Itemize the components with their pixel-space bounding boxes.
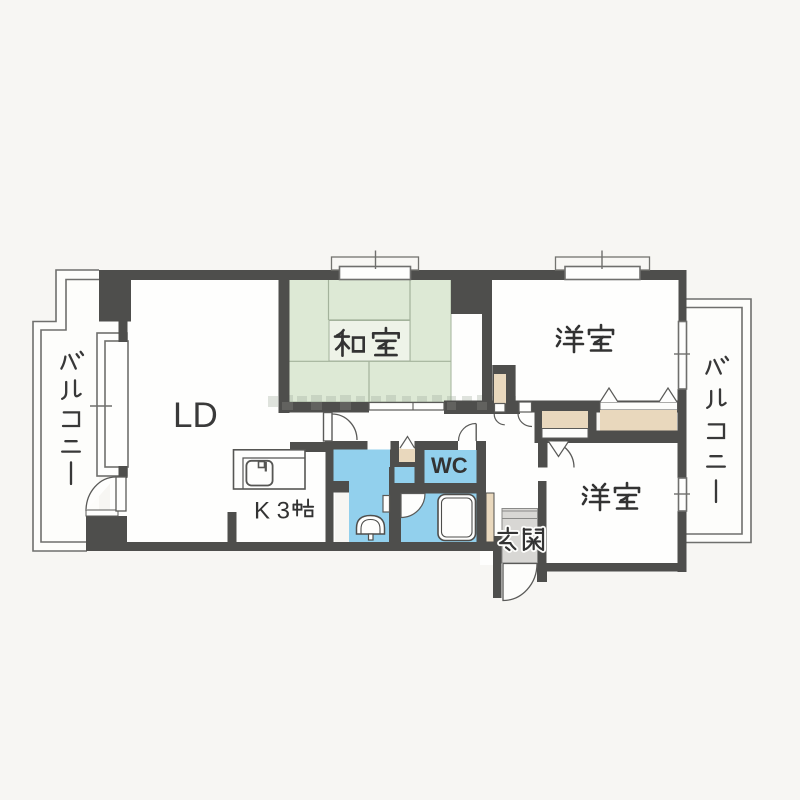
svg-text:LD: LD xyxy=(173,396,218,435)
svg-text:K 3: K 3 xyxy=(254,498,290,525)
svg-text:WC: WC xyxy=(431,453,468,478)
